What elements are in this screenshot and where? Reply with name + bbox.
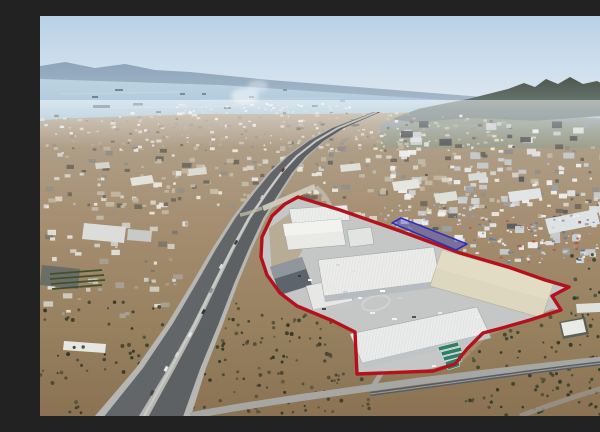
- shrub: [228, 318, 231, 321]
- building-speck: [425, 174, 428, 176]
- trailer-speck: [502, 243, 504, 245]
- trailer-speck: [473, 239, 475, 240]
- trailer-speck: [572, 215, 575, 217]
- trailer-speck: [530, 231, 533, 233]
- building-speck: [504, 150, 513, 155]
- tree: [581, 313, 583, 315]
- building-speck: [453, 180, 460, 184]
- building-speck: [581, 193, 585, 196]
- olive-tree: [596, 335, 599, 338]
- shrub: [272, 326, 275, 329]
- shrub: [259, 341, 262, 344]
- shrub: [86, 369, 88, 371]
- building-speck: [563, 210, 568, 214]
- building-speck: [115, 246, 117, 248]
- building-speck: [515, 259, 521, 262]
- building-speck: [397, 172, 400, 175]
- building-speck: [321, 166, 325, 168]
- shrub: [60, 371, 64, 375]
- building-speck: [217, 203, 220, 206]
- building-speck: [475, 252, 478, 254]
- building-speck: [182, 163, 192, 168]
- building-speck: [401, 156, 407, 159]
- shrub: [336, 382, 338, 384]
- shrub: [316, 322, 319, 325]
- trailer-speck: [492, 245, 493, 246]
- tree: [571, 313, 573, 315]
- building-speck: [145, 260, 148, 262]
- building-speck: [390, 174, 395, 178]
- yard-truck: [328, 285, 332, 287]
- building-speck: [164, 190, 169, 193]
- building-speck: [519, 177, 524, 182]
- building-speck: [98, 183, 101, 186]
- shrub: [286, 356, 288, 358]
- shrub: [342, 372, 345, 375]
- building-speck: [93, 148, 97, 150]
- shrub: [104, 353, 106, 355]
- building-speck: [551, 191, 557, 195]
- trailer-speck: [459, 223, 461, 224]
- building-speck: [334, 186, 337, 189]
- shrub: [143, 335, 146, 338]
- building-speck: [243, 194, 246, 196]
- shrub: [302, 382, 305, 385]
- building-speck: [570, 198, 573, 201]
- shrub: [261, 314, 264, 317]
- building-speck: [479, 205, 485, 208]
- trailer-speck: [458, 219, 461, 221]
- shrub: [233, 391, 235, 393]
- building-speck: [366, 158, 371, 162]
- building-speck: [433, 227, 439, 230]
- shrub: [360, 377, 364, 381]
- building-speck: [539, 198, 542, 201]
- building-speck: [580, 158, 584, 161]
- olive-tree: [483, 396, 486, 399]
- trailer-speck: [454, 216, 456, 217]
- building-speck: [48, 198, 56, 202]
- olive-tree: [567, 383, 570, 386]
- shrub: [335, 373, 338, 376]
- building-speck: [365, 165, 369, 167]
- trailer-speck: [528, 229, 530, 230]
- building-speck: [106, 202, 115, 207]
- trailer-speck: [493, 224, 497, 226]
- building-speck: [585, 201, 589, 203]
- ship: [180, 93, 185, 95]
- trailer-speck: [576, 238, 578, 240]
- shrub: [107, 307, 109, 309]
- building-speck: [67, 165, 74, 169]
- shrub: [221, 339, 224, 342]
- olive-tree: [517, 357, 519, 359]
- yard-truck: [322, 308, 326, 310]
- building-speck: [166, 185, 170, 189]
- building-speck: [229, 173, 233, 177]
- building-speck: [471, 198, 479, 204]
- trailer-speck: [482, 225, 485, 227]
- building-speck: [384, 150, 386, 152]
- building-speck: [94, 203, 97, 206]
- roof-mid: [95, 162, 110, 169]
- trailer-speck: [530, 224, 532, 225]
- trailer-speck: [478, 224, 481, 225]
- building-speck: [173, 274, 183, 279]
- building-speck: [495, 179, 499, 182]
- trailer-speck: [465, 229, 468, 231]
- building-speck: [589, 171, 592, 173]
- building-speck: [341, 185, 350, 190]
- building-speck: [247, 166, 254, 170]
- building-speck: [474, 195, 477, 197]
- building-speck: [479, 185, 487, 189]
- building-speck: [481, 193, 486, 198]
- warehouse-small-third: [347, 227, 374, 247]
- trailer-speck: [523, 224, 525, 225]
- building-speck: [315, 163, 319, 166]
- building-speck: [78, 298, 81, 300]
- shrub: [237, 323, 240, 326]
- building-speck: [111, 242, 118, 246]
- shrub: [157, 305, 161, 309]
- olive-tree: [541, 380, 544, 383]
- trailer-speck: [596, 247, 599, 249]
- trailer-speck: [425, 218, 429, 220]
- building-speck: [563, 203, 568, 207]
- building-speck: [247, 157, 251, 160]
- building-speck: [575, 204, 582, 209]
- trailer-speck: [568, 236, 569, 237]
- shrub: [130, 356, 133, 359]
- olive-tree: [487, 406, 490, 409]
- building-speck: [555, 179, 559, 183]
- shrub: [283, 391, 286, 394]
- building-speck: [106, 151, 113, 156]
- shrub: [241, 331, 244, 334]
- shrub: [256, 410, 260, 414]
- trailer-speck: [587, 260, 589, 261]
- shrub: [266, 386, 268, 388]
- shrub: [281, 412, 284, 415]
- building-speck: [96, 216, 103, 220]
- building-speck: [563, 153, 574, 159]
- trailer-speck: [528, 227, 530, 228]
- building-speck: [528, 242, 538, 248]
- shrub: [222, 373, 225, 376]
- shrub: [120, 344, 124, 348]
- building-speck: [567, 190, 575, 196]
- trailer-speck: [528, 255, 530, 257]
- trailer-speck: [582, 256, 585, 258]
- building-speck: [404, 194, 410, 199]
- building-speck: [547, 205, 551, 207]
- shrub: [327, 397, 330, 400]
- building-speck: [52, 257, 57, 261]
- building-speck: [63, 293, 72, 298]
- shrub: [337, 378, 340, 381]
- trailer-speck: [428, 212, 431, 213]
- building-speck: [190, 184, 195, 187]
- building-speck: [454, 155, 461, 159]
- building-speck: [150, 287, 160, 292]
- building-speck: [153, 182, 162, 186]
- building-speck: [190, 158, 195, 162]
- shrub: [333, 379, 336, 382]
- shrub: [298, 336, 301, 339]
- trailer-speck: [537, 247, 541, 249]
- yard-truck: [412, 316, 416, 318]
- trailer-speck: [489, 220, 491, 222]
- building-speck: [89, 159, 96, 163]
- building-speck: [55, 196, 62, 201]
- trailer-speck: [508, 251, 511, 253]
- olive-tree: [511, 382, 515, 386]
- building-speck: [203, 180, 209, 183]
- trailer-speck: [507, 230, 510, 232]
- yard-truck: [476, 316, 480, 318]
- olive-tree: [551, 346, 554, 349]
- trailer-speck: [447, 210, 451, 212]
- building-speck: [70, 249, 76, 252]
- trailer-speck: [535, 222, 537, 224]
- shrub: [236, 370, 239, 373]
- shrub: [237, 307, 240, 310]
- shrub: [81, 345, 84, 348]
- building-speck: [329, 152, 334, 157]
- olive-tree: [587, 313, 589, 315]
- building-speck: [380, 150, 383, 152]
- building-speck: [368, 189, 374, 192]
- shrub: [73, 346, 76, 349]
- building-speck: [125, 169, 130, 172]
- shrub: [331, 380, 334, 383]
- trailer-speck: [488, 242, 489, 243]
- shrub: [224, 359, 227, 362]
- shrub: [282, 355, 285, 358]
- shrub: [115, 361, 118, 364]
- shrub: [304, 405, 306, 407]
- olive-tree: [594, 405, 597, 408]
- olive-tree: [490, 401, 493, 404]
- trailer-speck: [387, 214, 389, 216]
- trailer-speck: [463, 207, 466, 208]
- building-speck: [50, 237, 55, 240]
- trailer-speck: [564, 237, 567, 239]
- shrub: [367, 407, 370, 410]
- building-speck: [500, 159, 503, 161]
- shrub: [122, 370, 126, 374]
- shrub: [296, 359, 298, 361]
- shrub: [104, 368, 106, 370]
- building-speck: [515, 226, 524, 233]
- yard-truck: [298, 275, 301, 277]
- building-speck: [98, 288, 102, 291]
- olive-tree: [500, 351, 503, 354]
- olive-tree: [516, 331, 519, 334]
- olive-tree: [540, 378, 542, 380]
- shrub: [80, 364, 83, 367]
- building-speck: [276, 151, 280, 153]
- smoke: [248, 80, 268, 92]
- trailer-speck: [433, 205, 435, 206]
- building-speck: [559, 194, 567, 199]
- building-speck: [142, 205, 146, 207]
- building-speck: [390, 166, 395, 171]
- building-speck: [576, 164, 581, 167]
- building-speck: [311, 195, 317, 199]
- trailer-speck: [499, 257, 502, 259]
- trailer-speck: [578, 259, 582, 261]
- building-speck: [134, 204, 142, 209]
- building-speck: [391, 159, 397, 162]
- olive-tree: [465, 400, 468, 403]
- trailer-speck: [587, 219, 589, 220]
- building-speck: [177, 188, 185, 193]
- shrub: [247, 320, 250, 323]
- shrub: [297, 319, 301, 323]
- building-speck: [43, 301, 53, 306]
- trailer-speck: [492, 239, 495, 241]
- olive-tree: [556, 386, 560, 390]
- olive-tree: [569, 390, 572, 393]
- building-speck: [46, 206, 48, 208]
- building-speck: [518, 170, 526, 174]
- building-speck: [257, 164, 261, 167]
- yard-truck: [454, 322, 459, 324]
- trailer-speck: [574, 242, 576, 244]
- building-speck: [532, 184, 536, 187]
- building-speck: [490, 171, 496, 175]
- aerial-photo-figure: Aerial photograph of an industrial wareh…: [40, 16, 600, 416]
- shrub: [281, 318, 283, 320]
- shrub: [309, 337, 311, 339]
- shrub: [113, 300, 116, 303]
- trailer-speck: [443, 205, 445, 207]
- building-speck: [65, 174, 71, 177]
- building-speck: [224, 162, 227, 165]
- building-speck: [150, 227, 158, 232]
- olive-tree: [556, 341, 560, 345]
- building-speck: [162, 210, 169, 214]
- shrub: [280, 371, 284, 375]
- olive-tree: [544, 356, 547, 359]
- building-speck: [312, 173, 318, 176]
- trailer-speck: [551, 252, 552, 253]
- building-speck: [386, 156, 391, 159]
- shrub: [208, 378, 212, 382]
- building-speck: [101, 178, 105, 181]
- building-speck: [460, 197, 468, 201]
- trailer-speck: [508, 261, 510, 263]
- tree: [570, 254, 574, 258]
- trailer-speck: [520, 226, 522, 227]
- tree: [589, 288, 591, 290]
- trailer-speck: [427, 208, 429, 209]
- shrub: [235, 303, 237, 305]
- trailer-speck: [470, 212, 475, 214]
- building-speck: [323, 182, 325, 184]
- shrub: [281, 380, 285, 384]
- trailer-speck: [547, 218, 548, 219]
- building-speck: [592, 187, 599, 192]
- shrub: [127, 343, 131, 347]
- building-speck: [420, 187, 425, 191]
- building-speck: [500, 209, 504, 211]
- shrub: [221, 344, 224, 347]
- ship: [283, 89, 287, 91]
- building-speck: [68, 192, 72, 196]
- building-speck: [66, 310, 70, 313]
- building-speck: [154, 262, 157, 265]
- building-speck: [469, 193, 472, 196]
- trailer-speck: [384, 207, 385, 208]
- shrub: [57, 372, 59, 374]
- building-speck: [168, 244, 175, 249]
- olive-tree: [569, 343, 573, 347]
- shrub: [65, 317, 69, 321]
- building-speck: [97, 191, 105, 195]
- trailer-speck: [563, 257, 565, 259]
- building-speck: [94, 244, 100, 248]
- building-speck: [158, 242, 167, 247]
- shrub: [319, 337, 322, 340]
- shrub: [253, 342, 257, 346]
- shrub: [64, 376, 67, 379]
- trailer-speck: [458, 213, 461, 215]
- building-speck: [330, 148, 334, 150]
- trailer-speck: [469, 227, 471, 229]
- building-speck: [252, 178, 259, 181]
- trailer-speck: [543, 242, 546, 244]
- building-speck: [160, 149, 167, 153]
- building-speck: [124, 163, 128, 166]
- trailer-speck: [534, 230, 537, 232]
- olive-tree: [535, 385, 539, 389]
- trailer-speck: [576, 248, 578, 250]
- olive-tree: [558, 380, 562, 384]
- shrub: [218, 360, 221, 363]
- olive-tree: [546, 395, 549, 398]
- trailer-speck: [405, 210, 407, 211]
- building-speck: [527, 149, 536, 155]
- yard-truck: [370, 312, 375, 314]
- trailer-speck: [559, 215, 561, 217]
- warehouse-left-small: [127, 229, 152, 242]
- building-speck: [172, 188, 175, 191]
- olive-tree: [589, 324, 593, 328]
- olive-tree: [586, 335, 588, 337]
- shrub: [304, 409, 307, 412]
- trailer-speck: [544, 253, 546, 255]
- shrub: [76, 359, 79, 362]
- trailer-speck: [500, 250, 501, 251]
- aerial-photo: Aerial photograph of an industrial wareh…: [40, 16, 600, 416]
- olive-tree: [472, 359, 476, 363]
- ship: [92, 96, 98, 98]
- building-speck: [115, 282, 124, 288]
- building-speck: [501, 196, 507, 202]
- building-speck: [80, 173, 84, 176]
- shrub: [319, 328, 321, 330]
- trailer-speck: [485, 218, 487, 220]
- building-speck: [171, 198, 176, 201]
- building-speck: [408, 206, 411, 209]
- trailer-speck: [526, 258, 528, 260]
- building-speck: [178, 197, 181, 200]
- shrub: [277, 372, 280, 375]
- olive-tree: [509, 329, 513, 333]
